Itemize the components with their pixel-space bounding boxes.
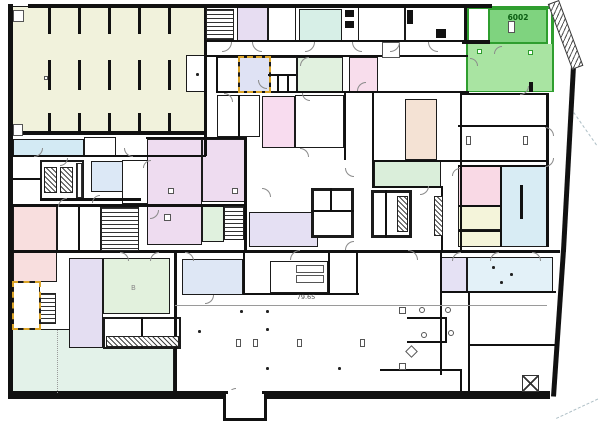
room-yellow-r1[interactable]: [458, 206, 501, 230]
fixture-box: [296, 265, 324, 273]
wall: [372, 186, 443, 188]
wall: [146, 137, 246, 139]
wall: [372, 160, 548, 162]
room-purple-bottom[interactable]: [69, 258, 103, 348]
fixture-box: [236, 339, 241, 347]
diamond-marker: [405, 345, 418, 358]
fixture-box: [297, 339, 302, 347]
reference-line: [175, 305, 547, 306]
fixture-box: [13, 124, 23, 136]
column-dot: [266, 367, 269, 370]
fixture-box: [399, 307, 406, 314]
column-circle: [445, 307, 451, 313]
stair-hatch: [60, 167, 73, 193]
exterior-wall-diagonal: [551, 250, 566, 397]
wall: [277, 75, 279, 92]
wall: [372, 93, 374, 188]
room-white-top2[interactable]: [358, 7, 405, 41]
wall: [468, 291, 470, 393]
storage-stall-divider: [138, 60, 141, 90]
room-lavender-br[interactable]: [441, 257, 467, 292]
room-green-small[interactable]: [202, 204, 224, 242]
shaft-box: [345, 21, 354, 28]
stair-hatch: [434, 196, 443, 236]
stair-hatch: [44, 167, 57, 193]
room-pink-right[interactable]: [458, 166, 501, 206]
wall: [460, 93, 548, 95]
room-lavender-core[interactable]: [249, 212, 318, 247]
wall: [458, 230, 502, 232]
fixture-box: [168, 188, 174, 194]
door-arc: [222, 42, 232, 52]
wall: [440, 291, 556, 293]
storage-stall-divider: [138, 8, 141, 34]
wall: [12, 155, 206, 157]
wall: [385, 190, 387, 238]
column-dot: [510, 273, 513, 276]
wall: [500, 165, 502, 247]
room-white-top[interactable]: [268, 7, 296, 41]
exterior-wall-diagonal: [561, 66, 576, 252]
stair-hatch: [206, 9, 234, 40]
wall: [311, 210, 354, 212]
wall: [243, 253, 245, 295]
shaft-box: [407, 10, 413, 24]
stair-hatch: [224, 206, 244, 240]
column-dot: [500, 281, 503, 284]
door-arc: [428, 42, 438, 52]
door-arc: [262, 188, 271, 197]
fixture-box: [13, 10, 24, 22]
fixture-box: [44, 76, 48, 80]
storage-stall-divider: [108, 113, 111, 133]
column-circle: [419, 307, 425, 313]
door-marker: [528, 50, 533, 55]
room-blue-left[interactable]: [91, 161, 123, 192]
site-boundary-line: [573, 112, 597, 145]
wall: [458, 125, 548, 127]
wall: [8, 4, 13, 395]
wall: [244, 137, 247, 253]
wall: [468, 344, 556, 346]
room-white-topleft[interactable]: [84, 137, 116, 156]
fixture-box: [466, 136, 471, 145]
selection-outline-2[interactable]: [12, 281, 41, 330]
floor-plan: 6002 79.65 B: [0, 0, 600, 425]
room-white-mid1[interactable]: [217, 57, 239, 92]
fixture-box: [360, 339, 365, 347]
wall: [268, 74, 296, 76]
shaft-box: [345, 10, 354, 17]
wall: [12, 250, 560, 253]
wall: [460, 93, 462, 253]
dimension-label: 79.65: [287, 294, 325, 301]
shaft-box: [436, 29, 446, 38]
column-dot: [266, 310, 269, 313]
wall: [529, 82, 533, 92]
column-dot: [198, 330, 201, 333]
room-tan[interactable]: [405, 99, 437, 160]
fixture-box: [253, 339, 258, 347]
wall: [330, 188, 332, 212]
fixture-box: [296, 275, 324, 283]
fixture-box: [232, 188, 238, 194]
door-arc: [352, 42, 362, 52]
room-blue-topleft[interactable]: [13, 139, 84, 156]
wall: [287, 75, 289, 92]
wall: [460, 369, 462, 393]
door-marker: [477, 49, 482, 54]
wall: [520, 185, 523, 219]
storage-stall-divider: [78, 60, 81, 90]
wall: [458, 205, 502, 207]
stair-hatch: [76, 163, 83, 198]
door-arc: [545, 127, 554, 136]
door-arc: [252, 42, 262, 52]
column-dot: [196, 73, 199, 76]
wall: [356, 253, 358, 293]
entrance-vestibule: [223, 391, 267, 421]
fixture-box: [399, 363, 406, 370]
storage-stall-divider: [108, 8, 111, 34]
wall: [462, 40, 490, 44]
room-pink-tall[interactable]: [262, 96, 295, 148]
door-arc: [345, 241, 354, 250]
door-arc: [545, 158, 554, 167]
room-number-label: 6002: [497, 14, 539, 22]
fixture-box: [523, 136, 528, 145]
wall: [380, 369, 462, 371]
door-arc: [300, 148, 309, 157]
storage-stall-divider: [48, 113, 51, 133]
stair-hatch: [106, 336, 179, 347]
door-arc: [532, 252, 541, 261]
wall: [440, 253, 442, 375]
column-dot: [492, 266, 495, 269]
wall: [464, 8, 467, 41]
wall: [174, 250, 177, 393]
entrance-opening: [228, 390, 262, 394]
stair-hatch: [101, 207, 139, 251]
storage-stall-divider: [168, 8, 171, 34]
door-arc: [345, 168, 354, 177]
room-mint-top[interactable]: [299, 9, 342, 41]
door-arc: [305, 42, 315, 52]
door-arc: [92, 195, 100, 203]
fixture-box: [164, 214, 171, 221]
storage-stall-divider: [48, 8, 51, 34]
wall: [445, 317, 447, 343]
column-circle: [421, 332, 427, 338]
wall: [407, 317, 447, 319]
wall: [458, 165, 548, 167]
door-arc: [150, 252, 159, 261]
wall: [328, 253, 330, 293]
door-arc: [452, 168, 460, 176]
shaft-x-symbol: [522, 375, 539, 392]
room-blue-bottom[interactable]: [182, 259, 243, 295]
stair-hatch: [397, 196, 408, 232]
room-green-mid[interactable]: [374, 161, 441, 187]
reference-line: [57, 330, 59, 393]
wall: [216, 55, 218, 93]
wall: [13, 178, 41, 180]
column-dot: [338, 367, 341, 370]
storage-stall-divider: [78, 113, 81, 133]
door-arc: [490, 252, 499, 261]
fixture-box: [508, 21, 515, 33]
column-circle: [448, 330, 454, 336]
wall: [28, 4, 492, 8]
wall: [344, 93, 346, 160]
door-arc: [205, 295, 214, 304]
storage-stall-divider: [78, 8, 81, 34]
wall: [40, 198, 141, 201]
column-dot: [266, 328, 269, 331]
storage-stall-divider: [168, 60, 171, 90]
storage-stall-divider: [108, 60, 111, 90]
stair-hatch: [40, 293, 56, 324]
storage-stall-divider: [168, 113, 171, 133]
storage-stall-divider: [138, 113, 141, 133]
room-yellow-r2[interactable]: [458, 230, 501, 247]
column-dot: [240, 310, 243, 313]
storage-stall-divider: [48, 60, 51, 90]
room-blue-right[interactable]: [500, 166, 547, 247]
selection-outline-1[interactable]: [238, 56, 271, 93]
core-left[interactable]: [311, 188, 354, 238]
door-arc: [452, 252, 461, 261]
room-white-c2[interactable]: [295, 95, 344, 148]
site-boundary-line: [556, 399, 598, 419]
door-arc: [120, 252, 129, 261]
wall: [78, 205, 80, 251]
room-lavender-2[interactable]: [202, 139, 245, 202]
wall: [546, 93, 549, 247]
door-arc: [420, 186, 429, 195]
door-arc: [185, 252, 194, 261]
wall: [238, 95, 240, 137]
wall: [407, 341, 447, 343]
room-purple-top[interactable]: [237, 7, 268, 41]
fixture-label: B: [131, 285, 143, 292]
room-pink-left[interactable]: [13, 206, 57, 282]
